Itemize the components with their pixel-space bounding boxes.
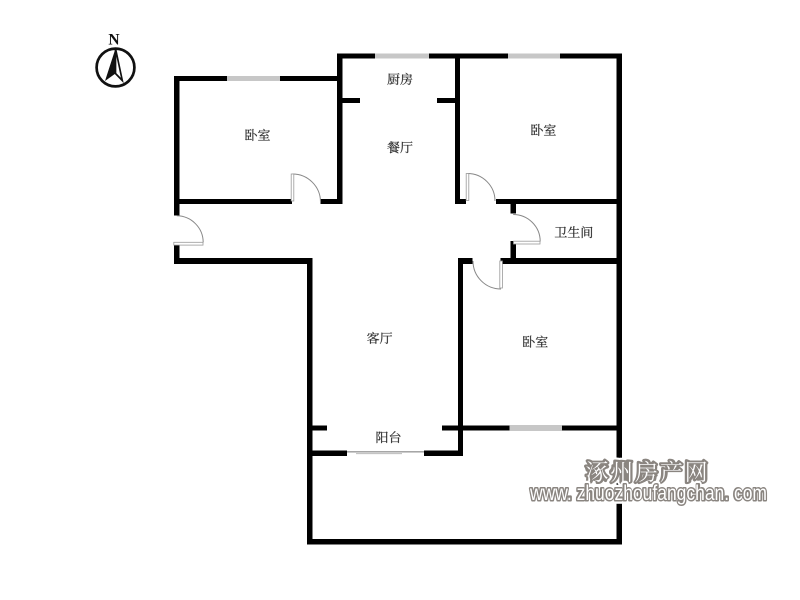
svg-text:N: N <box>108 32 119 49</box>
svg-text:www. zhuozhoufangchan. com: www. zhuozhoufangchan. com <box>529 481 767 505</box>
